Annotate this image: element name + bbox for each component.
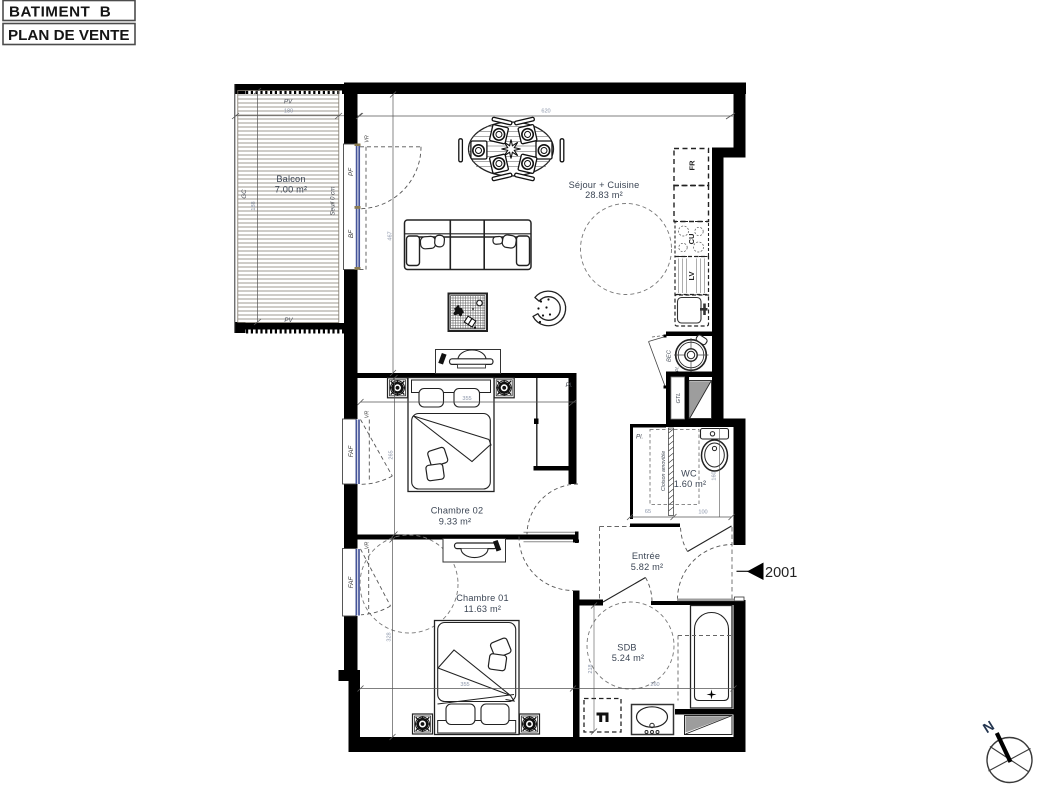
svg-text:265: 265 — [389, 450, 395, 459]
svg-text:PLAN DE VENTE: PLAN DE VENTE — [8, 27, 130, 44]
svg-text:VR: VR — [365, 542, 371, 550]
svg-text:Cloison amovible: Cloison amovible — [661, 451, 667, 491]
svg-text:218: 218 — [588, 664, 594, 673]
svg-text:Chambre 02: Chambre 02 — [431, 506, 484, 516]
svg-text:328: 328 — [387, 632, 393, 641]
svg-text:VR: VR — [365, 411, 371, 419]
svg-text:FAF: FAF — [348, 576, 355, 589]
svg-text:Pl.: Pl. — [566, 382, 573, 389]
svg-text:BF: BF — [348, 229, 355, 238]
svg-text:PV: PV — [284, 99, 293, 106]
svg-text:FAF: FAF — [348, 445, 355, 458]
svg-text:7.00 m²: 7.00 m² — [275, 185, 308, 195]
svg-text:PF: PF — [348, 167, 355, 176]
svg-text:Entrée: Entrée — [632, 551, 660, 561]
svg-text:Séjour + Cuisine: Séjour + Cuisine — [569, 180, 640, 190]
svg-text:Pl.: Pl. — [675, 366, 681, 372]
svg-text:VR: VR — [365, 135, 371, 143]
svg-text:355: 355 — [460, 682, 469, 688]
svg-text:Balcon: Balcon — [276, 174, 305, 184]
svg-text:100: 100 — [698, 510, 707, 516]
svg-text:260: 260 — [650, 682, 659, 688]
svg-text:188: 188 — [251, 201, 257, 210]
svg-text:FR: FR — [688, 160, 697, 171]
svg-text:1.60 m²: 1.60 m² — [674, 479, 707, 489]
svg-text:CU: CU — [687, 234, 696, 245]
svg-text:GC: GC — [241, 189, 248, 199]
svg-text:N: N — [980, 717, 997, 736]
svg-text:PV: PV — [284, 317, 293, 324]
svg-text:355: 355 — [462, 396, 471, 402]
svg-text:5.24 m²: 5.24 m² — [612, 653, 645, 663]
svg-text:2001: 2001 — [765, 565, 797, 581]
svg-text:467: 467 — [388, 231, 394, 240]
svg-text:11.63 m²: 11.63 m² — [464, 604, 501, 614]
svg-text:BATIMENT B: BATIMENT B — [9, 4, 111, 21]
svg-text:LV: LV — [687, 271, 696, 280]
svg-text:SDB: SDB — [617, 643, 637, 653]
svg-text:WC: WC — [681, 469, 697, 479]
svg-text:160: 160 — [712, 471, 718, 480]
svg-text:180: 180 — [284, 109, 293, 115]
svg-text:GTL: GTL — [676, 393, 682, 404]
svg-text:5.82 m²: 5.82 m² — [631, 562, 664, 572]
svg-text:Chambre 01: Chambre 01 — [456, 593, 509, 603]
svg-text:28.83 m²: 28.83 m² — [585, 190, 623, 200]
svg-text:Seuil 0 cm: Seuil 0 cm — [330, 187, 337, 216]
svg-text:BEC: BEC — [667, 349, 673, 362]
svg-text:9.33 m²: 9.33 m² — [439, 517, 472, 527]
svg-text:65: 65 — [645, 509, 651, 515]
svg-text:620: 620 — [541, 109, 550, 115]
svg-text:Pl.: Pl. — [636, 434, 643, 441]
